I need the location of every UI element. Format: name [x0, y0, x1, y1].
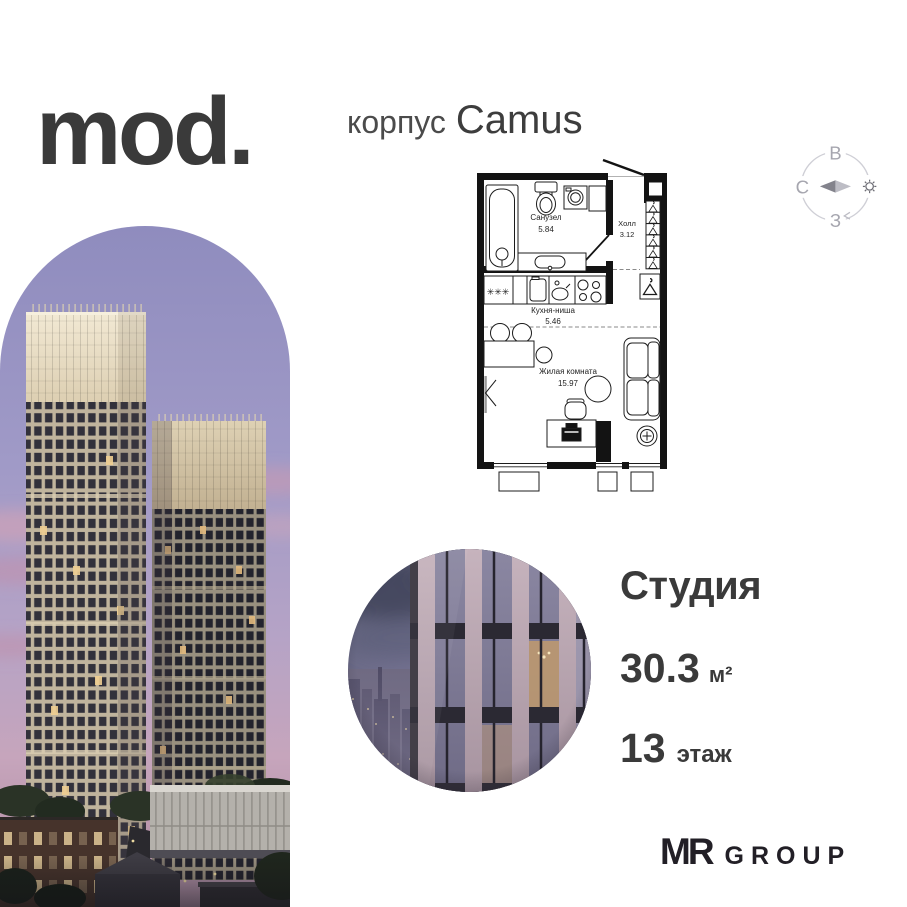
unit-floor-unit: этаж	[677, 741, 732, 769]
room-label-kitchen: Кухня-ниша	[531, 306, 575, 315]
korpus-label: корпус	[347, 104, 446, 141]
chair-icon	[513, 324, 532, 343]
table-icon	[484, 341, 534, 367]
ventilation-icon	[637, 426, 657, 446]
washing-machine-icon	[564, 186, 587, 209]
bathroom-door-leaf	[586, 235, 609, 260]
kitchen-marks: ✳✳✳	[487, 287, 510, 297]
round-table-icon	[585, 376, 611, 402]
entry-shaft	[649, 182, 663, 196]
compass-east-label: В	[829, 145, 841, 163]
room-label-hall: Холл	[618, 219, 636, 228]
unit-floor: 13 этаж	[620, 725, 761, 772]
room-label-living: Жилая комната	[539, 367, 597, 376]
group-wordmark: GROUP	[725, 842, 852, 871]
brand-logo: mod.	[36, 84, 251, 180]
bath-sink-icon	[518, 253, 586, 273]
compass-diamond-icon	[820, 180, 851, 192]
room-area-bathroom: 5.84	[538, 225, 554, 234]
window-sill	[499, 472, 653, 491]
floor-plan: ✳✳✳	[477, 153, 669, 493]
unit-floor-value: 13	[620, 725, 666, 772]
tower-photo	[0, 226, 290, 907]
room-area-hall: 3.12	[620, 230, 635, 239]
unit-card: mod. корпус Camus В С З	[0, 0, 907, 907]
sofa-icon	[624, 338, 660, 420]
compass: В С З	[793, 145, 881, 233]
facade-photo	[348, 549, 591, 792]
compass-west-label: З	[830, 210, 841, 231]
unit-area: 30.3 м²	[620, 645, 761, 692]
unit-area-unit: м²	[709, 662, 733, 688]
bath-niche	[589, 186, 606, 211]
room-area-living: 15.97	[558, 379, 579, 388]
chair-icon	[491, 324, 510, 343]
desk-icon	[547, 399, 596, 447]
chair-icon	[536, 347, 552, 363]
toilet-icon	[535, 182, 557, 215]
entrance-door-leaf	[603, 160, 644, 175]
unit-area-value: 30.3	[620, 645, 700, 692]
room-label-bathroom: Санузел	[530, 213, 561, 222]
ground-scene	[0, 774, 290, 907]
korpus-name: Camus	[456, 98, 583, 143]
room-area-kitchen: 5.46	[545, 317, 561, 326]
unit-specs: Студия 30.3 м² 13 этаж	[620, 564, 761, 772]
developer-logo: MR GROUP	[660, 831, 851, 873]
unit-type: Студия	[620, 564, 761, 609]
compass-north-label: С	[796, 177, 809, 198]
bathtub-icon	[486, 185, 518, 271]
wall-niche-mark	[486, 376, 497, 413]
korpus-title: корпус Camus	[347, 98, 583, 143]
mr-monogram: MR	[660, 831, 712, 873]
fridge-icon	[530, 277, 546, 301]
